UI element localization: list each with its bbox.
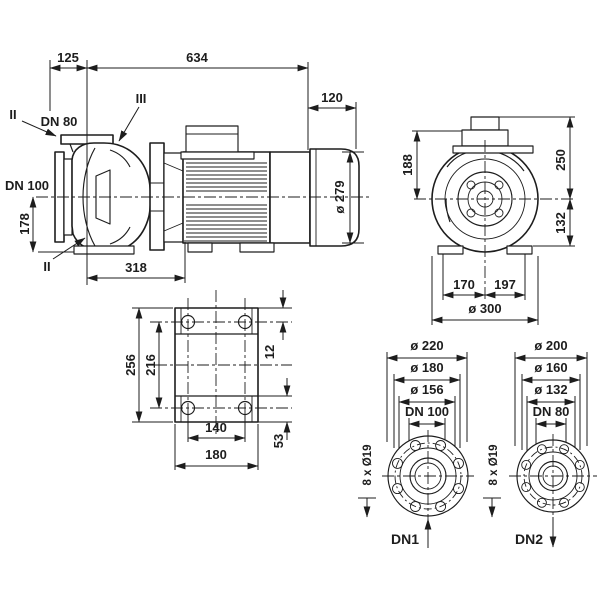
dim-53: 53 <box>271 434 286 448</box>
dim-dia-200: ø 200 <box>534 338 567 353</box>
dim-140: 140 <box>205 420 227 435</box>
dim-279: ø 279 <box>332 180 347 213</box>
dim-dia-180: ø 180 <box>410 360 443 375</box>
dim-dia-132: ø 132 <box>534 382 567 397</box>
dim-dia-160: ø 160 <box>534 360 567 375</box>
dim-300: ø 300 <box>468 301 501 316</box>
terminal-box-base <box>181 152 254 159</box>
dim-125: 125 <box>57 50 79 65</box>
dim-216: 216 <box>143 354 158 376</box>
motor-foot-front <box>188 243 212 252</box>
label-dn100: DN 100 <box>405 404 449 419</box>
marker-ii-top: II <box>9 107 16 122</box>
volute-casing <box>72 143 151 252</box>
front-view: 188 250 132 170 197 ø 300 <box>400 117 576 325</box>
dim-132: 132 <box>553 212 568 234</box>
dim-120: 120 <box>321 90 343 105</box>
flange-view-dn2: ø 200 ø 160 ø 132 DN 80 8 x Ø19 DN2 <box>483 338 597 547</box>
terminal-box <box>186 126 238 152</box>
dim-178: 178 <box>17 213 32 235</box>
dim-256: 256 <box>123 354 138 376</box>
marker-iii: III <box>136 91 147 106</box>
label-dn100: DN 100 <box>5 178 49 193</box>
dim-197: 197 <box>494 277 516 292</box>
dim-180: 180 <box>205 447 227 462</box>
motor-flange-plate <box>150 143 164 250</box>
label-dn80-flange: DN 80 <box>533 404 570 419</box>
pump-foot <box>74 246 134 254</box>
side-view: 125 634 120 ø 279 318 178 DN 80 DN 100 I… <box>5 50 372 285</box>
flange-view-dn1: ø 220 ø 180 ø 156 DN 100 8 x Ø19 DN1 <box>358 338 474 548</box>
casing-foot-right <box>507 246 532 254</box>
dim-250: 250 <box>553 149 568 171</box>
dim-170: 170 <box>453 277 475 292</box>
terminal-box-top <box>471 117 499 130</box>
dim-318: 318 <box>125 260 147 275</box>
drawing-canvas: 125 634 120 ø 279 318 178 DN 80 DN 100 I… <box>0 0 600 600</box>
baseplate-plan-view: 256 216 12 53 140 180 <box>123 290 292 470</box>
dim-188: 188 <box>400 154 415 176</box>
dim-dia-156: ø 156 <box>410 382 443 397</box>
pump-dimensional-drawing: 125 634 120 ø 279 318 178 DN 80 DN 100 I… <box>0 0 600 600</box>
dn1-holes-label: 8 x Ø19 <box>362 445 374 486</box>
dim-634: 634 <box>186 50 208 65</box>
motor-foot-rear <box>240 243 274 252</box>
marker-ii-bottom: II <box>43 259 50 274</box>
port-label-dn2: DN2 <box>515 531 543 547</box>
leader-iii <box>119 107 139 141</box>
dim-12: 12 <box>262 345 277 359</box>
casing-foot-left <box>438 246 463 254</box>
motor-rear-body <box>270 152 310 243</box>
label-dn80: DN 80 <box>41 114 78 129</box>
casing-top-plate <box>453 146 533 153</box>
lantern-adapter <box>164 153 183 242</box>
dn2-holes-label: 8 x Ø19 <box>488 445 500 486</box>
port-label-dn1: DN1 <box>391 531 419 547</box>
dim-dia-220: ø 220 <box>410 338 443 353</box>
